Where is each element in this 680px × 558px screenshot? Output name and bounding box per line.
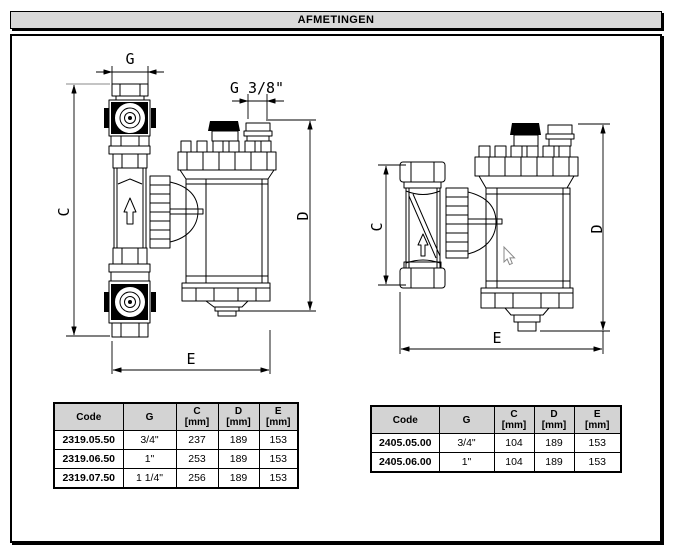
dim-c: C [55,84,110,336]
cell-d: 189 [534,434,574,453]
dim-label-c: C [368,222,386,231]
cell-code: 2405.06.00 [371,453,439,473]
table-row: 2319.07.50 1 1/4" 256 189 153 [54,469,298,489]
top-ball-valve-icon [104,84,156,146]
col-header-c: C [mm] [494,406,534,434]
upper-union-nut [109,146,150,168]
filter-connection-nut [150,176,203,248]
cell-g: 3/4" [439,434,494,453]
col-header-c: C [mm] [176,403,218,431]
flow-direction-arrow-icon [124,198,136,224]
col-header-d: D [mm] [534,406,574,434]
drain-port [505,308,549,331]
col-header-e: E [mm] [259,403,298,431]
cell-e: 153 [574,453,621,473]
dim-d: D [237,120,316,311]
filter-canister [475,123,578,331]
cell-code: 2405.05.00 [371,434,439,453]
cell-d: 189 [218,431,259,450]
cell-d: 189 [218,469,259,489]
cell-c: 256 [176,469,218,489]
drawing-filter-compact: C D E [360,105,625,360]
cell-c: 104 [494,434,534,453]
drawing-filter-with-valves: G G 3/8" C D [50,45,320,380]
datasheet-page: AFMETINGEN G G 3/8" [0,0,680,558]
drain-port [206,301,248,316]
cell-code: 2319.06.50 [54,450,123,469]
mouse-pointer-icon [504,247,515,265]
table-row: 2319.06.50 1" 253 189 153 [54,450,298,469]
pipe-body [114,168,146,248]
dim-label-d: D [588,224,606,233]
filter-cap-ring [475,146,578,176]
table-row: 2405.06.00 1" 104 189 153 [371,453,621,473]
cell-c: 104 [494,453,534,473]
dimensions-table-right: Code G C [mm] D [mm] E [mm] [370,405,622,473]
filter-bottom-ring [481,288,573,308]
table-header-row: Code G C [mm] D [mm] E [mm] [371,406,621,434]
cell-g: 1 1/4" [123,469,176,489]
col-header-d: D [mm] [218,403,259,431]
cell-e: 153 [574,434,621,453]
col-header-g: G [439,406,494,434]
air-vent-knob-icon [510,123,541,135]
cell-g: 1" [123,450,176,469]
cell-code: 2319.07.50 [54,469,123,489]
cell-code: 2319.05.50 [54,431,123,450]
cell-d: 189 [218,450,259,469]
dim-label-d: D [294,211,312,220]
table-row: 2319.05.50 3/4" 237 189 153 [54,431,298,450]
dimensions-table-left: Code G C [mm] D [mm] E [mm] [53,402,299,489]
lower-union-nut [109,248,150,272]
dim-g38: G 3/8" [230,79,284,119]
content-frame: G G 3/8" C D [10,34,662,543]
cell-e: 153 [259,450,298,469]
dim-c: C [368,165,406,285]
cell-c: 237 [176,431,218,450]
dim-d: D [540,124,610,331]
filter-cap-ring [178,141,276,170]
dim-label-g: G [125,50,134,68]
air-vent-knob-icon [208,121,240,131]
table-header-row: Code G C [mm] D [mm] E [mm] [54,403,298,431]
col-header-e: E [mm] [574,406,621,434]
col-header-code: Code [54,403,123,431]
filter-canister [178,121,276,316]
dim-label-g38: G 3/8" [230,79,284,97]
cell-e: 153 [259,469,298,489]
cell-g: 3/4" [123,431,176,450]
section-title-bar: AFMETINGEN [10,11,662,29]
filter-connection-nut [446,188,502,258]
dim-label-e: E [186,350,195,368]
tee-pipe-body [400,162,445,288]
col-header-code: Code [371,406,439,434]
dim-label-c: C [55,207,73,216]
cell-g: 1" [439,453,494,473]
filter-bottom-ring [182,283,270,301]
cell-c: 253 [176,450,218,469]
dim-label-e: E [492,329,501,347]
cell-d: 189 [534,453,574,473]
section-title: AFMETINGEN [298,14,375,26]
bottom-ball-valve-icon [104,272,156,337]
col-header-g: G [123,403,176,431]
top-port [546,125,574,146]
dim-g: G [96,50,164,84]
cell-e: 153 [259,431,298,450]
g38-port [244,123,272,141]
table-row: 2405.05.00 3/4" 104 189 153 [371,434,621,453]
